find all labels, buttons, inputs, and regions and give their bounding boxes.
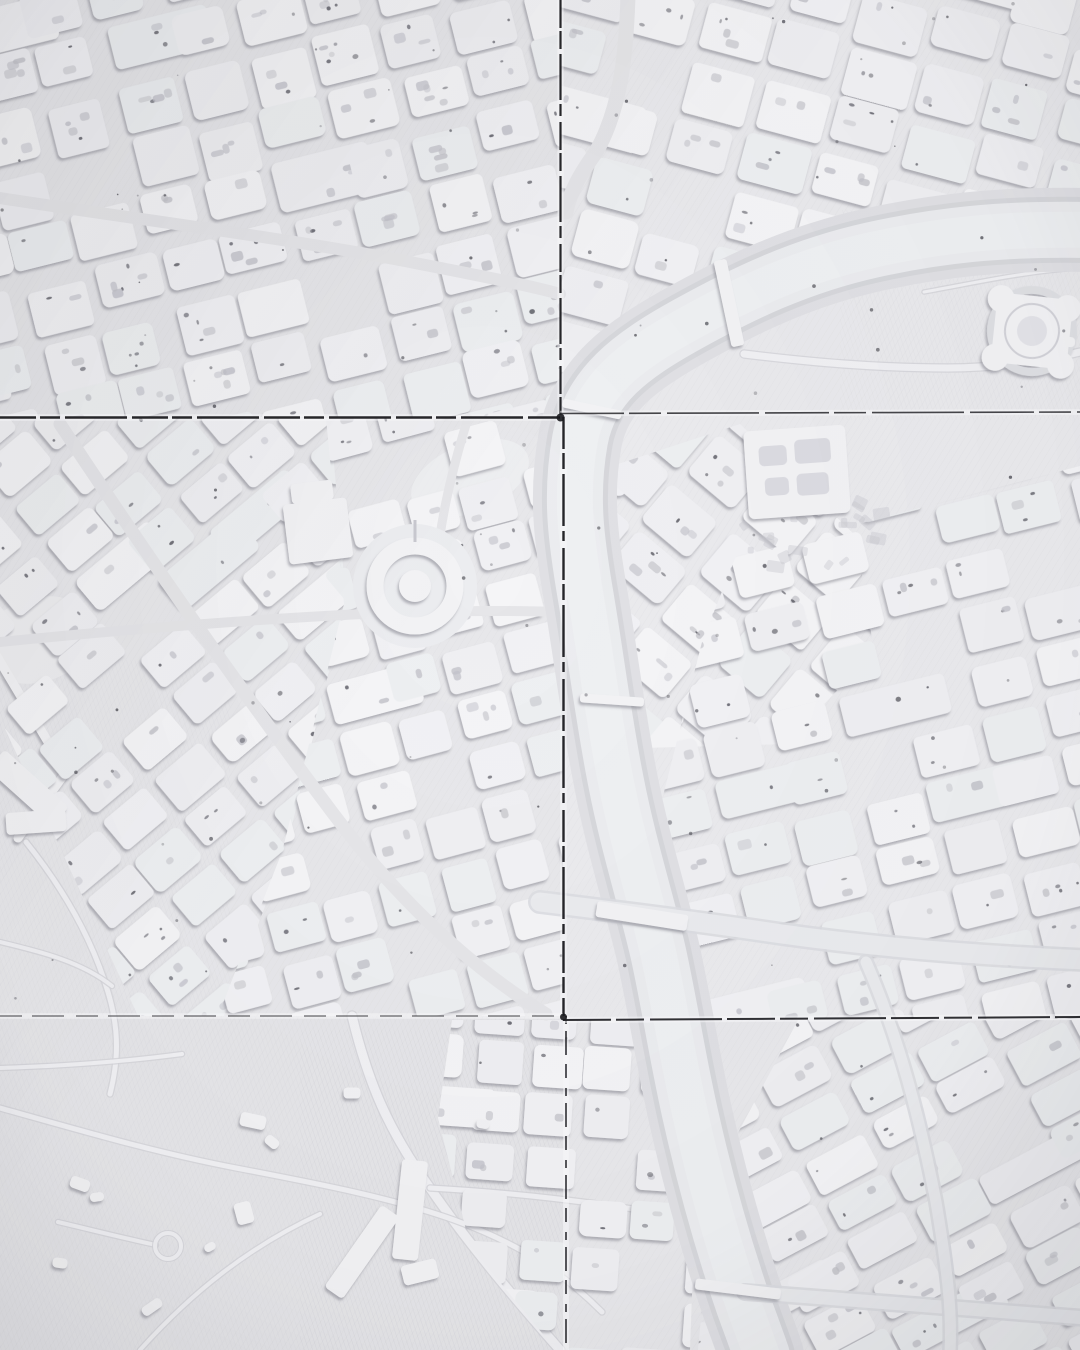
seam-joint	[560, 1014, 567, 1021]
city-model-svg	[0, 0, 1080, 1350]
seam-joint	[557, 414, 565, 422]
city-model-photo	[0, 0, 1080, 1350]
corner-shading	[0, 0, 1080, 1350]
